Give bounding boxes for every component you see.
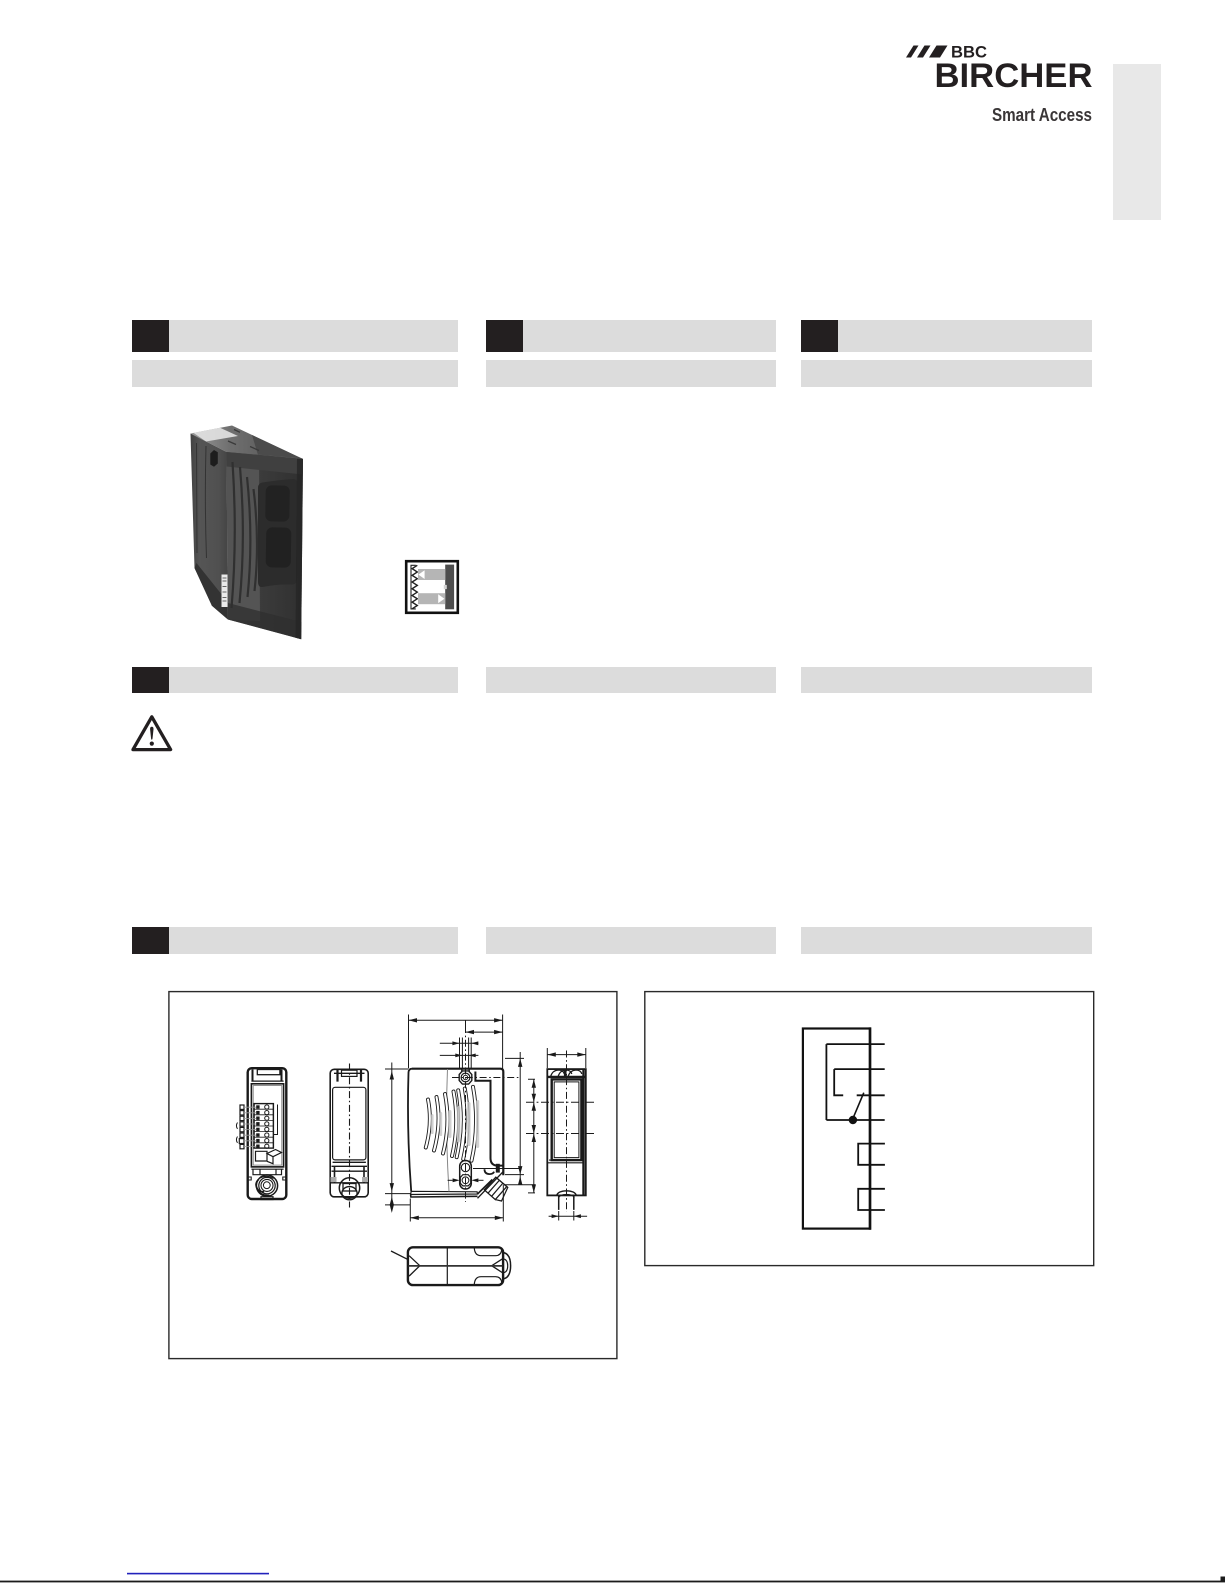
svg-text:Smart Access: Smart Access xyxy=(992,104,1092,125)
svg-text:BIRCHER: BIRCHER xyxy=(935,57,1093,95)
